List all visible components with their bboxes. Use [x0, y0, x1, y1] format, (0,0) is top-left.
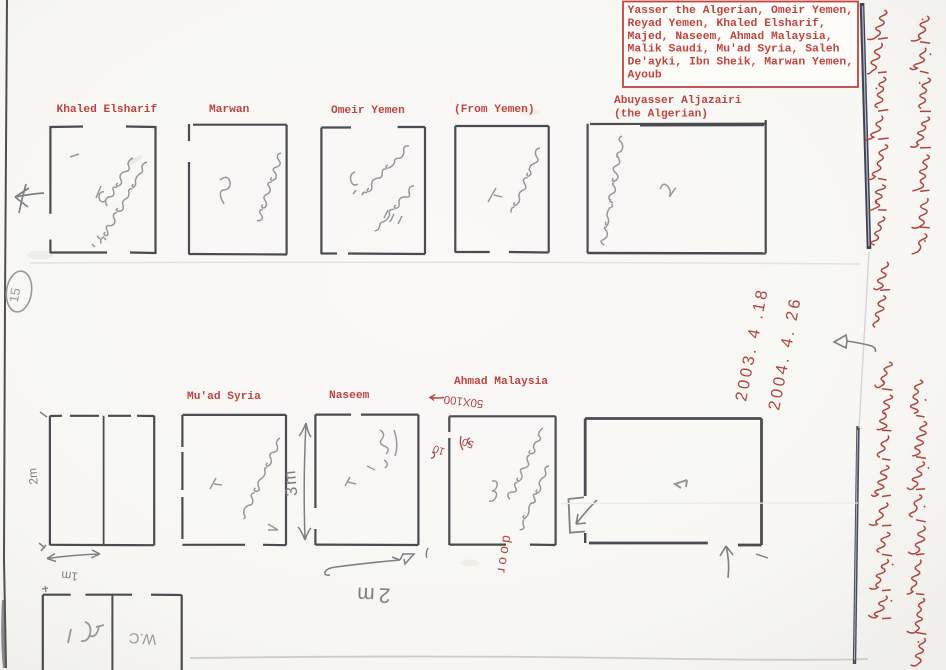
svg-text:W.C: W.C: [129, 629, 157, 647]
svg-text:De'ayki, Ibn Sheik, Marwan Yem: De'ayki, Ibn Sheik, Marwan Yemen,: [628, 57, 854, 69]
svg-text:Ayoub: Ayoub: [628, 70, 662, 82]
svg-text:15: 15: [6, 287, 23, 304]
svg-text:Majed, Naseem, Ahmad Malaysia,: Majed, Naseem, Ahmad Malaysia,: [628, 31, 833, 43]
svg-text:3m: 3m: [280, 468, 301, 497]
svg-text:Malik Saudi, Mu'ad Syria, Sale: Malik Saudi, Mu'ad Syria, Saleh: [628, 44, 840, 56]
svg-text:Ahmad Malaysia: Ahmad Malaysia: [454, 376, 548, 388]
svg-text:Mu'ad Syria: Mu'ad Syria: [187, 391, 261, 403]
svg-text:Marwan: Marwan: [209, 104, 250, 116]
svg-text:2m: 2m: [25, 467, 40, 485]
svg-text:(the Algerian): (the Algerian): [614, 109, 708, 121]
svg-text:Abuyasser Aljazairi: Abuyasser Aljazairi: [614, 95, 742, 107]
svg-text:Omeir Yemen: Omeir Yemen: [331, 105, 405, 117]
svg-text:2m: 2m: [353, 582, 391, 606]
svg-text:Naseem: Naseem: [329, 390, 370, 402]
svg-text:Khaled Elsharif: Khaled Elsharif: [57, 104, 158, 116]
svg-text:1m: 1m: [61, 568, 79, 583]
svg-text:Reyad Yemen, Khaled Elsharif,: Reyad Yemen, Khaled Elsharif,: [628, 18, 826, 30]
svg-text:(From Yemen): (From Yemen): [454, 104, 535, 116]
svg-text:Yasser the Algerian, Omeir Yem: Yasser the Algerian, Omeir Yemen,: [628, 5, 854, 17]
